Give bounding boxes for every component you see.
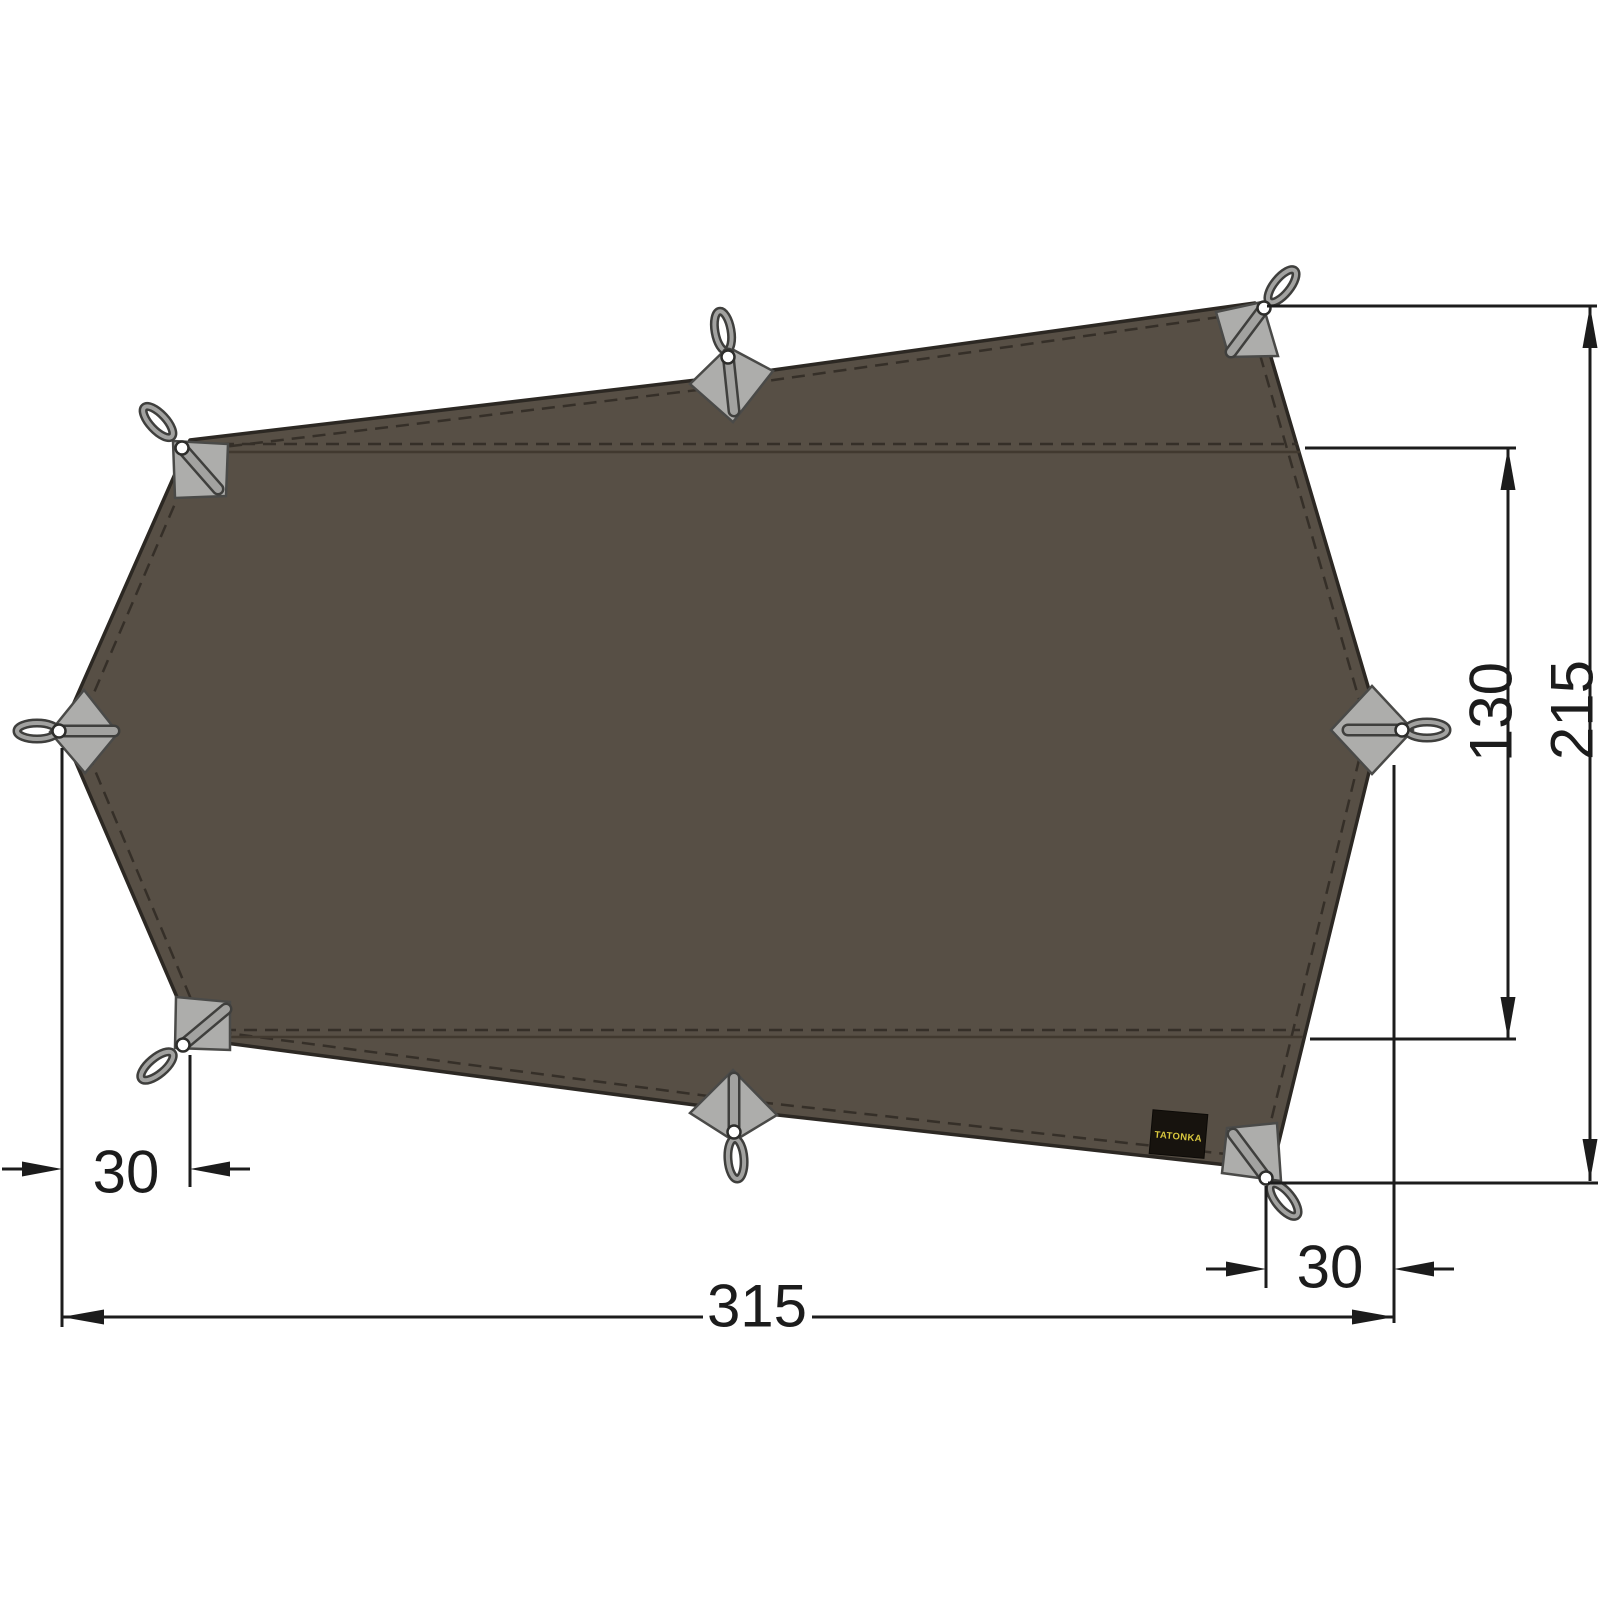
grommet [177, 1039, 190, 1052]
diagram-canvas: TATONKA [0, 0, 1600, 1600]
arrowhead-down [1583, 1139, 1598, 1181]
grommet [176, 442, 189, 455]
grommet [722, 351, 735, 364]
attachment-top-right [1216, 265, 1301, 357]
tarp-dimension-diagram: TATONKA [0, 0, 1600, 1600]
tarp-outline [62, 303, 1380, 1170]
arrowhead-left [190, 1162, 230, 1177]
grommet [1258, 302, 1271, 315]
arrowhead-up [1501, 448, 1516, 490]
dimension-label-offset-left: 30 [93, 1139, 160, 1206]
arrowhead-right [22, 1162, 62, 1177]
grommet [728, 1126, 741, 1139]
brand-label: TATONKA [1149, 1110, 1208, 1159]
arrowhead-left [62, 1310, 104, 1325]
arrowhead-up [1583, 306, 1598, 348]
attachment-top-left [139, 402, 228, 498]
dimension-label-panel: 130 [1458, 662, 1525, 762]
dimension-label-offset-right: 30 [1297, 1234, 1364, 1301]
tarp-fabric [62, 303, 1380, 1170]
dimension-label-width: 315 [707, 1273, 807, 1340]
attachment-bottom-left [137, 997, 230, 1085]
grommet [1396, 724, 1409, 737]
arrowhead-down [1501, 997, 1516, 1039]
dimension-label-height: 215 [1539, 660, 1600, 760]
arrowhead-right [1226, 1262, 1266, 1277]
arrowhead-right [1352, 1310, 1394, 1325]
arrowhead-left [1394, 1262, 1434, 1277]
grommet [53, 725, 66, 738]
attachment-bottom-right [1222, 1123, 1303, 1221]
